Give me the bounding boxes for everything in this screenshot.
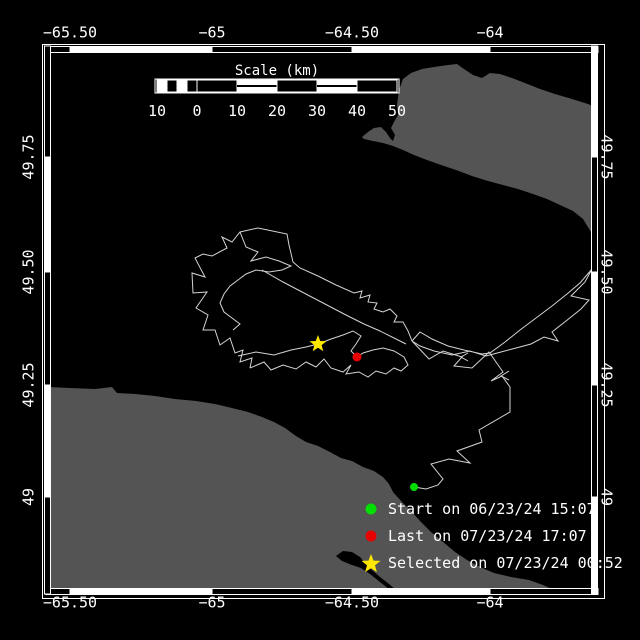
frame-band-segment [212,47,352,53]
selected-point-star-marker[interactable] [309,335,326,351]
selected-marker-icon [356,550,388,576]
axis-label-bottom: −64 [476,596,503,611]
start-point-marker[interactable] [410,483,418,491]
scale-bar-title: Scale (km) [235,63,319,79]
circle-glyph [356,496,388,522]
star-glyph [356,550,388,576]
axis-label-left: 49.25 [22,362,37,407]
frame-band-segment [45,272,51,385]
axis-label-right: 49.75 [599,134,614,179]
frame-band-segment [45,497,51,594]
axis-label-right: 49 [599,488,614,506]
axis-label-top: −64.50 [325,26,379,41]
scale-bar-cell [357,80,397,92]
frame-band-segment [490,47,598,53]
frame-band-segment [45,385,51,497]
track-legend: Start on 06/23/24 15:07 Last on 07/23/24… [356,495,623,576]
legend-item-last: Last on 07/23/24 17:07 [356,522,623,549]
frame-band-segment [45,157,51,272]
axis-label-bottom: −65 [198,596,225,611]
frame-band-segment [45,46,51,157]
track-path [192,228,258,368]
scale-bar-tick-label: 10 [228,102,246,120]
scale-bar-cell [277,80,317,92]
scale-bar-cell [167,80,177,92]
track-path [250,348,408,377]
axis-label-top: −64 [476,26,503,41]
track-path [262,270,406,344]
scale-bar-cell [157,80,167,92]
track-path [258,228,412,341]
scale-bar-tick-label: 0 [192,102,201,120]
last-point-marker[interactable] [353,353,362,362]
frame-band-segment [70,47,212,53]
axis-label-bottom: −65.50 [43,596,97,611]
legend-start-label: Start on 06/23/24 15:07 [388,500,596,518]
track-path [412,341,510,489]
track-path [412,269,592,356]
legend-selected-label: Selected on 07/23/24 00:52 [388,554,623,572]
scale-bar-tick-label: 10 [148,102,166,120]
scale-bar-tick-label: 40 [348,102,366,120]
last-marker-icon [356,523,388,549]
scale-bar-cell [187,80,197,92]
axis-label-top: −65 [198,26,225,41]
frame-band-segment [352,47,490,53]
axis-label-right: 49.50 [599,249,614,294]
scale-bar-cell [177,80,187,92]
axis-label-top: −65.50 [43,26,97,41]
legend-last-label: Last on 07/23/24 17:07 [388,527,587,545]
start-marker-icon [356,496,388,522]
map-canvas: Scale (km) Start on 06/23/24 15:07 Last … [0,0,640,640]
legend-item-start: Start on 06/23/24 15:07 [356,495,623,522]
scale-bar-cell [197,80,237,92]
axis-label-left: 49 [22,488,37,506]
scale-bar-tick-label: 20 [268,102,286,120]
legend-item-selected: Selected on 07/23/24 00:52 [356,549,623,576]
frame-band-segment [490,589,598,595]
scale-bar-tick-label: 50 [388,102,406,120]
scale-bar-tick-label: 30 [308,102,326,120]
axis-label-left: 49.50 [22,249,37,294]
axis-label-bottom: −64.50 [325,596,379,611]
axis-label-left: 49.75 [22,134,37,179]
axis-label-right: 49.25 [599,362,614,407]
track-path [238,331,361,357]
circle-glyph [356,523,388,549]
